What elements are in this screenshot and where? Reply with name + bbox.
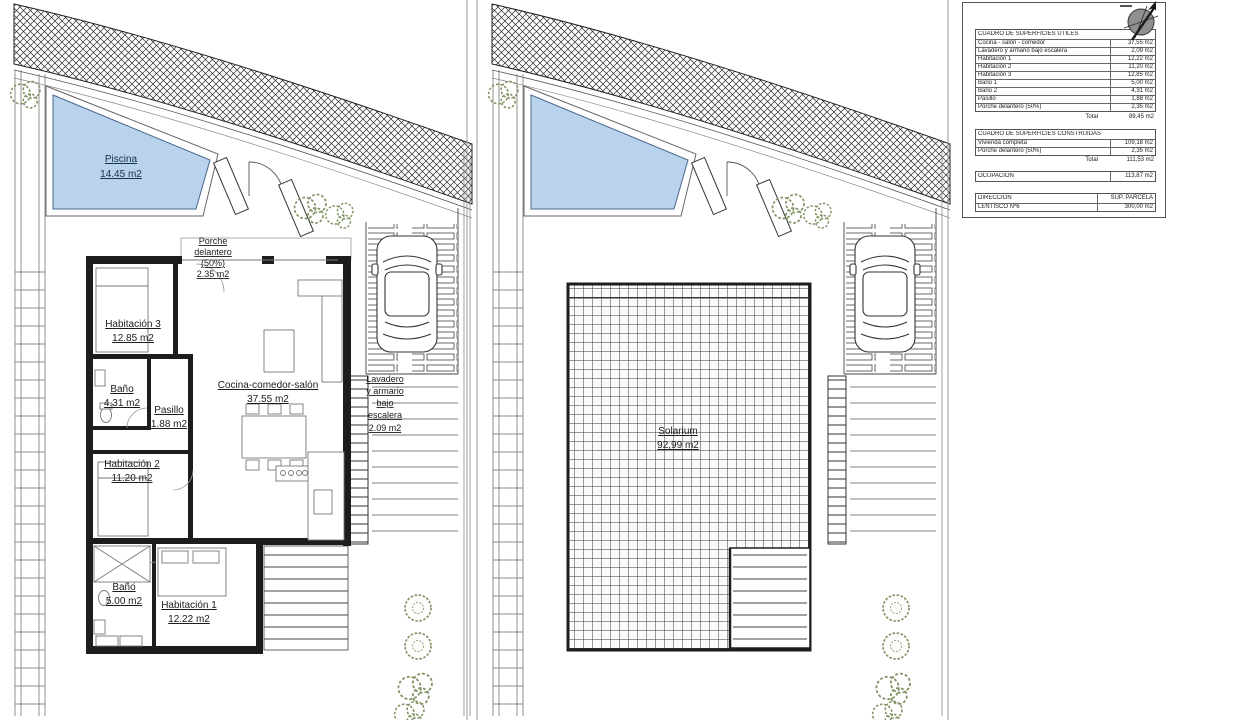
- svg-text:4.31 m2: 4.31 m2: [104, 398, 141, 409]
- bedroom3-label: Habitación 3: [105, 319, 161, 330]
- bedroom2-label: Habitación 2: [104, 459, 160, 470]
- table-row: Habitación 211,20 m2: [976, 63, 1155, 71]
- table-row: Porche delantero (50%)2,35 m2: [976, 103, 1155, 111]
- svg-text:y armario: y armario: [366, 386, 404, 396]
- solarium-roof-plan: Solarium 92,99 m2: [568, 284, 810, 650]
- north-arrow-icon: [1112, 0, 1170, 42]
- svg-text:92,99 m2: 92,99 m2: [657, 440, 699, 451]
- pool-label: Piscina: [105, 154, 138, 165]
- bath1-label: Baño: [112, 582, 136, 593]
- bath2-label: Baño: [110, 384, 134, 395]
- table-row: Baño 24,31 m2: [976, 87, 1155, 95]
- svg-text:2.35 m2: 2.35 m2: [197, 269, 230, 279]
- bedroom1-label: Habitación 1: [161, 600, 217, 611]
- table-row: Porche delantero (50%)2,35 m2: [976, 147, 1155, 155]
- hallway-label: Pasillo: [154, 405, 184, 416]
- svg-text:2.09 m2: 2.09 m2: [369, 423, 402, 433]
- svg-text:37.55 m2: 37.55 m2: [247, 394, 289, 405]
- svg-text:5.00 m2: 5.00 m2: [106, 596, 143, 607]
- table-row: LENTISCO Nº6 300,00 m2: [976, 203, 1155, 211]
- table-row: DIRECCIÓN SUP. PARCELA: [976, 194, 1155, 203]
- site-plan-left: [11, 4, 472, 720]
- laundry-label: Lavadero: [366, 374, 404, 384]
- table-ocupacion: OCUPACIÓN 113,87 m2: [975, 171, 1156, 182]
- table-title: CUADRO DE SUPERFICIES CONSTRUIDAS: [976, 131, 1155, 138]
- table-direccion: DIRECCIÓN SUP. PARCELA LENTISCO Nº6 300,…: [975, 193, 1156, 212]
- construidas-total-row: Total 111,53 m2: [975, 155, 1156, 164]
- table-row: Lavadero y armario bajo escalera2,09 m2: [976, 47, 1155, 55]
- svg-text:delantero: delantero: [194, 247, 232, 257]
- kitchen-living-label: Cocina-comedor-salón: [218, 380, 319, 391]
- svg-text:12.22 m2: 12.22 m2: [168, 614, 210, 625]
- table-row: Pasillo1,88 m2: [976, 95, 1155, 103]
- table-superficies-construidas: CUADRO DE SUPERFICIES CONSTRUIDAS Vivien…: [975, 129, 1156, 156]
- table-row: Habitación 312,85 m2: [976, 71, 1155, 79]
- porch-label: Porche: [199, 236, 228, 246]
- table-row: Habitación 112,22 m2: [976, 55, 1155, 63]
- pool-area: 14.45 m2: [100, 169, 142, 180]
- table-row: OCUPACIÓN 113,87 m2: [976, 172, 1155, 181]
- table-row: Baño 15,00 m2: [976, 79, 1155, 87]
- svg-text:bajo: bajo: [376, 398, 393, 408]
- svg-text:11.20 m2: 11.20 m2: [112, 473, 153, 484]
- table-row: Vivienda completa109,18 m2: [976, 139, 1155, 147]
- utiles-total-row: Total 89,45 m2: [975, 112, 1156, 121]
- svg-text:escalera: escalera: [368, 410, 402, 420]
- svg-text:1.88 m2: 1.88 m2: [151, 419, 188, 430]
- svg-text:12.85 m2: 12.85 m2: [112, 333, 154, 344]
- drawing-sheet: Piscina 14.45 m2 Porche delantero (50%) …: [0, 0, 1240, 720]
- svg-text:(50%): (50%): [201, 258, 225, 268]
- solarium-label: Solarium: [658, 426, 697, 437]
